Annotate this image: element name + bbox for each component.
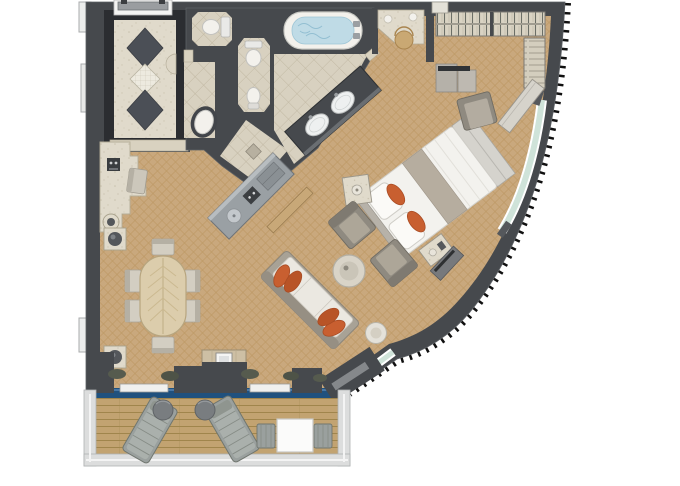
toilet-icon	[203, 20, 220, 35]
floorplan-canvas	[0, 0, 680, 486]
vanity-stool	[395, 31, 413, 49]
dining-chair	[125, 300, 141, 322]
toilet-tank	[221, 17, 230, 37]
toilet-tank	[245, 41, 262, 48]
planter	[104, 228, 126, 250]
coffee-table	[333, 255, 365, 287]
master-wc	[238, 38, 270, 112]
nightstand-left	[342, 174, 372, 205]
bathtub	[284, 12, 362, 49]
entry-hall	[100, 0, 190, 152]
toilet-icon	[246, 50, 261, 67]
espresso-machine-icon	[107, 158, 120, 171]
balcony-side-table	[153, 400, 173, 420]
dining-chair	[125, 270, 141, 292]
bidet-icon	[247, 88, 260, 105]
dressers	[436, 64, 476, 92]
plant-icon	[108, 369, 126, 379]
balcony-chair	[257, 424, 275, 448]
plant-icon	[161, 371, 179, 381]
side-table	[366, 323, 387, 344]
plant-icon	[241, 369, 259, 379]
counter-chair	[126, 168, 147, 194]
dining-chair	[152, 239, 174, 255]
sliding-door	[120, 384, 168, 392]
closet-niche	[432, 2, 448, 13]
balcony	[84, 390, 350, 466]
balcony-side-table	[195, 400, 215, 420]
dining-chair	[152, 337, 174, 353]
plant-icon	[283, 372, 299, 381]
balcony-chair	[314, 424, 332, 448]
entry-door	[114, 0, 172, 15]
plant-icon	[313, 374, 327, 382]
balcony-table	[277, 419, 313, 452]
dining-table	[140, 256, 186, 336]
guest-wc	[192, 12, 232, 46]
sliding-door	[250, 384, 290, 392]
